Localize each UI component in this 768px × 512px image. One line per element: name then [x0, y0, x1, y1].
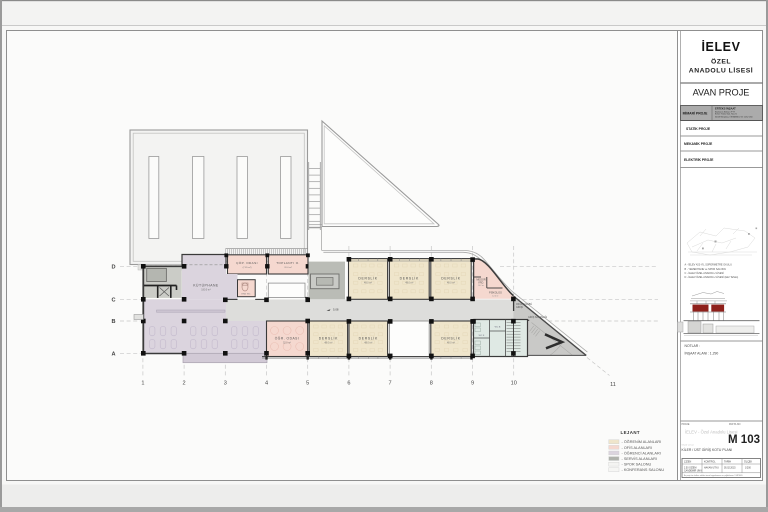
svg-text:DERSLİK: DERSLİK: [400, 275, 419, 280]
svg-text:05.02.2015: 05.02.2015: [724, 467, 736, 469]
svg-text:WC B: WC B: [495, 327, 501, 329]
svg-text:ÖLÇEK: ÖLÇEK: [744, 460, 753, 463]
svg-text:ELEKTRİK PROJE: ELEKTRİK PROJE: [684, 158, 714, 162]
svg-text:KONTROL: KONTROL: [704, 460, 716, 463]
svg-text:OKUL KULÜBÜ: OKUL KULÜBÜ: [516, 303, 532, 306]
svg-text:TARİH: TARİH: [724, 460, 731, 463]
svg-text:20.0 m²: 20.0 m²: [284, 266, 292, 269]
svg-text:5: 5: [306, 380, 309, 386]
svg-text:ÖĞR. ODASI: ÖĞR. ODASI: [275, 335, 300, 340]
svg-text:- OFİS ALANLARI: - OFİS ALANLARI: [622, 445, 652, 450]
svg-text:Bu proje tüm hakları saklıdır: Bu proje tüm hakları saklıdır izinsiz ko…: [684, 474, 743, 477]
svg-text:3: 3: [224, 380, 227, 386]
svg-text:180.0 m²: 180.0 m²: [201, 289, 211, 292]
svg-text:1: 1: [141, 380, 144, 386]
svg-text:DERSLİK: DERSLİK: [359, 335, 378, 340]
svg-text:52.0 m²: 52.0 m²: [283, 341, 291, 344]
svg-text:PAFTA NO: PAFTA NO: [729, 423, 741, 426]
svg-text:MEKANİK PROJE: MEKANİK PROJE: [684, 142, 713, 146]
svg-text:DERSLİK: DERSLİK: [319, 335, 338, 340]
svg-text:ÖZEL: ÖZEL: [711, 57, 731, 66]
svg-text:7: 7: [389, 380, 392, 386]
svg-text:B - YEMEKHANE ve SPOR SALONU: B - YEMEKHANE ve SPOR SALONU: [685, 268, 727, 271]
svg-text:ENG WC: ENG WC: [242, 294, 251, 296]
svg-text:9: 9: [471, 380, 474, 386]
svg-text:İNŞAAT ALANI : 1.290: İNŞAAT ALANI : 1.290: [685, 350, 719, 355]
svg-text:- ÖĞRENCİ ALANLARI: - ÖĞRENCİ ALANLARI: [622, 450, 661, 455]
svg-text:6: 6: [347, 380, 350, 386]
svg-text:DERSLİK: DERSLİK: [358, 275, 377, 280]
svg-text:5.08: 5.08: [333, 308, 339, 312]
svg-text:B: B: [111, 319, 115, 325]
svg-text:A - İELEV 420 YIL SÜPERMETRE O: A - İELEV 420 YIL SÜPERMETRE OKULU: [685, 264, 733, 267]
svg-text:İELEV: İELEV: [701, 39, 740, 54]
svg-text:48.0 m²: 48.0 m²: [324, 341, 332, 344]
svg-text:48.0 m²: 48.0 m²: [364, 282, 372, 285]
svg-text:Ölçek ve kat: Ölçek ve kat: [682, 443, 694, 446]
svg-text:48.0 m²: 48.0 m²: [447, 341, 455, 344]
svg-text:AVAN PROJE: AVAN PROJE: [693, 88, 750, 98]
svg-text:4: 4: [265, 380, 268, 386]
svg-text:34349 Beşiktaş / İSTANBUL Tel:: 34349 Beşiktaş / İSTANBUL Tel: 0212 260: [715, 115, 753, 118]
svg-text:ANADOLU LİSESİ: ANADOLU LİSESİ: [689, 67, 753, 75]
svg-text:- SERVİS ALANLARI: - SERVİS ALANLARI: [622, 456, 657, 461]
svg-text:MİMARİ PROJE: MİMARİ PROJE: [683, 112, 709, 116]
svg-text:C - İELEV ÖZEL ANADOLU LİSESİ: C - İELEV ÖZEL ANADOLU LİSESİ: [685, 272, 725, 275]
svg-text:D - İELEV ÖZEL ANADOLU LİSESİ: D - İELEV ÖZEL ANADOLU LİSESİ (Ek2 Tahsi…: [685, 276, 739, 279]
svg-text:12.0 m²: 12.0 m²: [492, 294, 499, 297]
svg-text:WC K: WC K: [479, 335, 485, 337]
svg-text:48.0 m²: 48.0 m²: [405, 282, 413, 285]
svg-text:GİRİŞİ: GİRİŞİ: [516, 306, 523, 309]
svg-text:2.50 GİZEM: 2.50 GİZEM: [684, 466, 696, 469]
svg-text:DERSLİK: DERSLİK: [441, 335, 460, 340]
svg-text:Evleri Yıldız Sok. No:21: Evleri Yıldız Sok. No:21: [715, 113, 738, 116]
svg-text:C: C: [111, 297, 115, 303]
svg-text:8: 8: [430, 380, 433, 386]
svg-text:1/200: 1/200: [745, 467, 751, 469]
svg-text:48.0 m²: 48.0 m²: [447, 282, 455, 285]
svg-text:NOTLAR :: NOTLAR :: [685, 344, 701, 348]
svg-text:KÜTÜPHANE: KÜTÜPHANE: [193, 284, 219, 288]
svg-text:TOPLANTI O.: TOPLANTI O.: [276, 261, 300, 265]
svg-text:2: 2: [183, 380, 186, 386]
svg-text:CANDEMİR UNV: CANDEMİR UNV: [684, 469, 702, 472]
svg-text:PSİKOLOG: PSİKOLOG: [489, 292, 502, 295]
svg-text:A: A: [111, 351, 115, 357]
svg-text:(7.65 m²): (7.65 m²): [243, 266, 252, 269]
svg-text:PROJE: PROJE: [682, 423, 690, 426]
svg-text:KİLER / ÜST GİRİŞ KOTU PLANI: KİLER / ÜST GİRİŞ KOTU PLANI: [682, 447, 733, 452]
svg-text:ÇÖP. ODASI: ÇÖP. ODASI: [236, 261, 258, 265]
svg-text:- SPOR SALONU: - SPOR SALONU: [622, 463, 652, 467]
svg-text:M 103: M 103: [728, 434, 760, 446]
svg-text:HAKAN UTKU: HAKAN UTKU: [704, 466, 719, 469]
svg-text:D: D: [111, 264, 115, 270]
svg-text:STATİK PROJE: STATİK PROJE: [686, 127, 711, 131]
svg-text:LEJANT: LEJANT: [621, 430, 640, 435]
svg-text:YRD.: YRD.: [478, 281, 484, 284]
svg-text:- KONFERANS SALONU: - KONFERANS SALONU: [622, 468, 665, 472]
svg-text:GİRİŞ SAHANLIĞI: GİRİŞ SAHANLIĞI: [528, 316, 548, 319]
svg-text:48.0 m²: 48.0 m²: [364, 341, 372, 344]
svg-text:11: 11: [610, 382, 616, 388]
svg-text:10: 10: [511, 380, 517, 386]
svg-text:- ÖĞRENİM ALANLARI: - ÖĞRENİM ALANLARI: [622, 439, 662, 444]
svg-text:DERSLİK: DERSLİK: [441, 275, 460, 280]
svg-text:14.2 m²: 14.2 m²: [478, 284, 485, 287]
svg-text:ÇİZEN: ÇİZEN: [684, 460, 691, 463]
